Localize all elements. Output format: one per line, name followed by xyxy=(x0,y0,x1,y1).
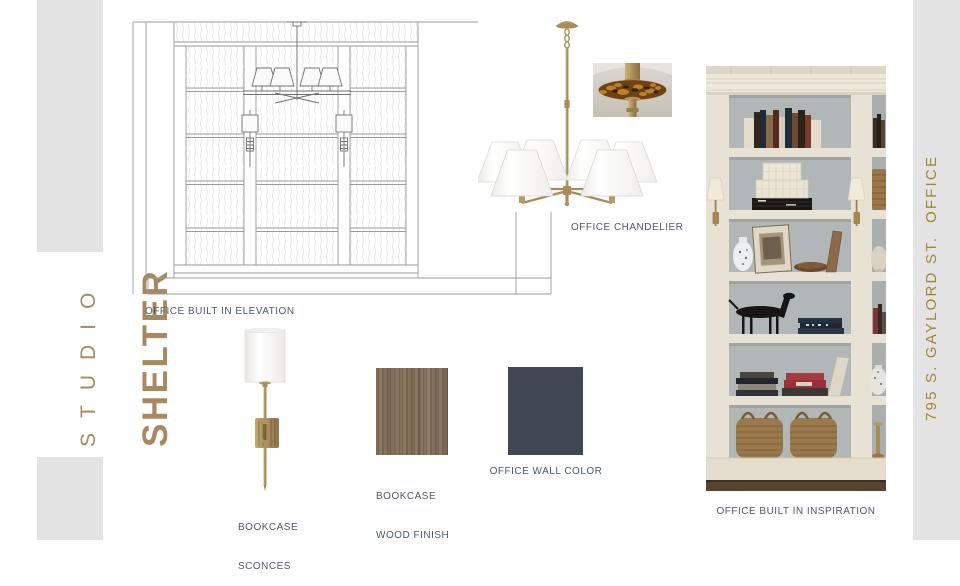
label-wood-line1: BOOKCASE xyxy=(376,490,449,503)
label-sconces-line2: SCONCES xyxy=(238,560,298,573)
project-address-text: 795 S. GAYLORD ST. OFFICE xyxy=(923,127,940,421)
left-top-bar xyxy=(37,0,103,252)
brand-studio-text: STUDIO xyxy=(77,267,101,447)
label-chandelier: OFFICE CHANDELIER xyxy=(571,221,683,234)
office-built-in-inspiration-photo xyxy=(706,66,886,491)
label-wood-line2: WOOD FINISH xyxy=(376,529,449,542)
office-wall-swatch xyxy=(508,367,583,455)
label-wall-color: OFFICE WALL COLOR xyxy=(488,465,604,478)
label-elevation: OFFICE BUILT IN ELEVATION xyxy=(145,305,295,318)
label-inspiration: OFFICE BUILT IN INSPIRATION xyxy=(706,505,886,518)
left-bottom-bar xyxy=(37,457,103,540)
chandelier-detail-inset-photo xyxy=(593,63,672,117)
label-wood-finish: BOOKCASE WOOD FINISH xyxy=(376,464,449,555)
bookcase-wood-finish-swatch xyxy=(376,368,448,455)
label-sconces-line1: BOOKCASE xyxy=(238,521,298,534)
bookcase-sconce-photo xyxy=(228,325,304,495)
label-sconces: BOOKCASE SCONCES xyxy=(238,495,298,586)
